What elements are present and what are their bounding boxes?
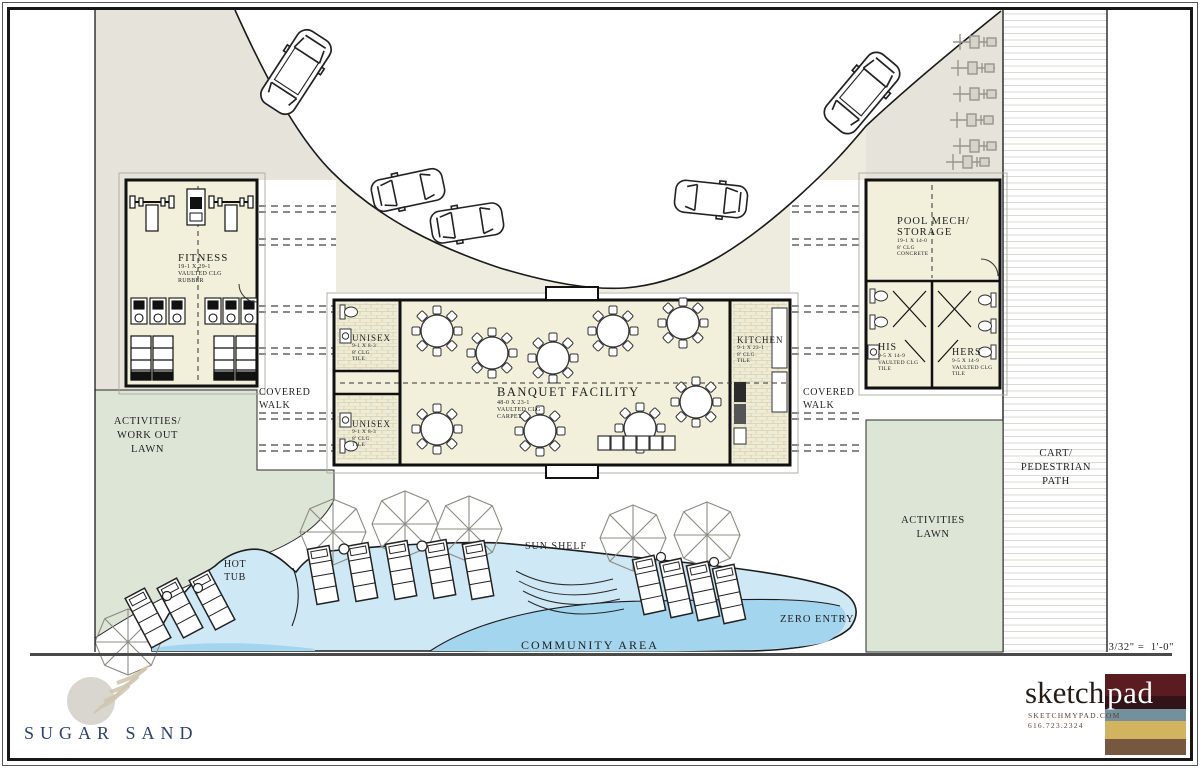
studio-phone: 616.723.2324 — [1028, 721, 1084, 730]
room-title: UNISEX — [352, 333, 398, 343]
cart-path-strip — [1003, 10, 1107, 652]
room-title: KITCHEN — [737, 335, 797, 345]
room-title-2: STORAGE — [897, 227, 997, 238]
weight-machine-icon — [187, 189, 205, 225]
hot-tub-label: HOT TUB — [210, 558, 260, 584]
car-icon — [673, 176, 749, 221]
community-name: SUGAR SAND — [24, 722, 199, 745]
cart-path-label: CART/ PEDESTRIAN PATH — [1012, 447, 1100, 489]
banquet-building — [334, 287, 790, 478]
workout-lawn-label: ACTIVITIES/ WORK OUT LAWN — [100, 415, 195, 457]
room-dims: 19-1 X 29-1 — [178, 264, 268, 271]
room-floor: TILE — [352, 356, 398, 363]
kitchen-range-icon — [734, 404, 746, 424]
his-label: HIS 9-5 X 14-9 VAULTED CLG TILE — [878, 342, 938, 373]
covered-walk-right-area — [790, 180, 866, 470]
sugar-sand-logo-mark — [67, 666, 148, 725]
room-title: HIS — [878, 342, 938, 353]
umbrella-icon — [674, 502, 740, 568]
titleblock-rule — [30, 653, 1172, 656]
hers-label: HERS 9-5 X 14-9 VAULTED CLG TILE — [952, 347, 1012, 378]
studio-name-left: sketch — [1025, 674, 1104, 713]
room-ceiling: VAULTED CLG — [497, 407, 647, 414]
room-floor: TILE — [952, 371, 1012, 378]
room-title: BANQUET FACILITY — [497, 385, 647, 400]
site-plan-sheet: FITNESS 19-1 X 29-1 VAULTED CLG RUBBER U… — [0, 0, 1200, 768]
zero-entry-label: ZERO ENTRY — [780, 613, 854, 626]
kitchen-range-icon — [734, 382, 746, 402]
room-floor: RUBBER — [178, 278, 268, 285]
covered-walk-left-label: COVERED WALK — [259, 386, 329, 412]
car-icon — [369, 164, 447, 216]
logo-stripe-brown — [1105, 739, 1186, 755]
covered-walk-left-area — [258, 180, 336, 470]
room-title: UNISEX — [352, 419, 398, 429]
room-title: POOL MECH/ — [897, 216, 997, 227]
room-floor: TILE — [737, 358, 797, 365]
room-floor: TILE — [352, 442, 398, 449]
room-floor: CONCRETE — [897, 251, 997, 258]
room-title: HERS — [952, 347, 1012, 358]
entry-porch — [546, 465, 598, 478]
activities-lawn-label: ACTIVITIES LAWN — [893, 514, 973, 542]
room-ceiling: VAULTED CLG — [178, 271, 268, 278]
unisex-bottom-label: UNISEX 9-1 X 8-3 8' CLG TILE — [352, 419, 398, 449]
sink-icon — [340, 329, 351, 343]
buffet-tables — [598, 436, 675, 450]
studio-name-right: pad — [1107, 674, 1154, 713]
kitchen-label: KITCHEN 9-1 X 23-1 8' CLG TILE — [737, 335, 797, 365]
room-floor: TILE — [878, 366, 938, 373]
entry-porch — [546, 287, 598, 300]
room-dims: 48-0 X 23-1 — [497, 400, 647, 407]
fitness-label: FITNESS 19-1 X 29-1 VAULTED CLG RUBBER — [178, 252, 268, 285]
sheet-title: COMMUNITY AREA — [480, 638, 700, 653]
car-icon — [428, 199, 505, 248]
pool-mech-label: POOL MECH/ STORAGE 19-1 X 14-0 8' CLG CO… — [897, 216, 997, 258]
sun-shelf-label: SUN SHELF — [525, 541, 587, 554]
sink-icon — [340, 413, 351, 427]
banquet-label: BANQUET FACILITY 48-0 X 23-1 VAULTED CLG… — [497, 385, 647, 421]
unisex-top-label: UNISEX 9-1 X 8-3 8' CLG TILE — [352, 333, 398, 363]
room-floor: CARPET — [497, 414, 647, 421]
kitchen-counter — [772, 372, 787, 412]
covered-walk-right-label: COVERED WALK — [803, 386, 873, 412]
paving-mid-walkway — [332, 126, 866, 292]
room-title: FITNESS — [178, 252, 268, 264]
logo-stripe-gold — [1105, 721, 1186, 739]
